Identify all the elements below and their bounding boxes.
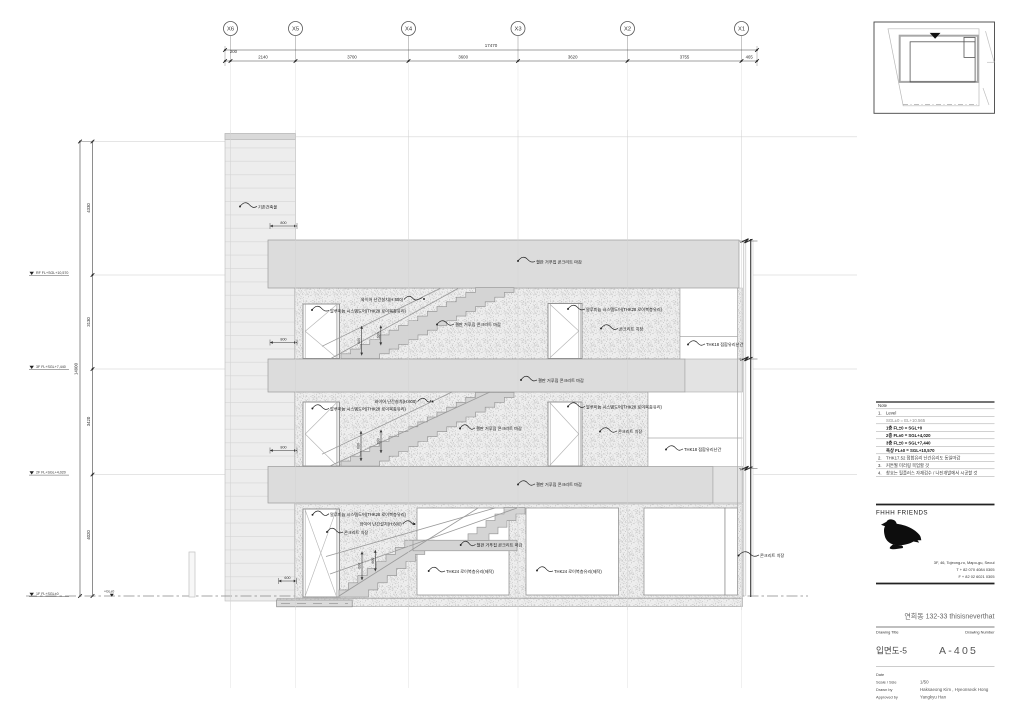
svg-text:챌판 거푸집 콘크리트 마감: 챌판 거푸집 콘크리트 마감 <box>536 481 582 488</box>
svg-text:THK24 로이복층유리(제작): THK24 로이복층유리(제작) <box>446 568 494 575</box>
svg-text:4020: 4020 <box>86 530 91 540</box>
svg-text:와이어 난간설치(H:600): 와이어 난간설치(H:600) <box>361 296 404 303</box>
svg-text:챌판 거푸집 콘크리트 마감: 챌판 거푸집 콘크리트 마감 <box>536 259 582 266</box>
svg-text:Note: Note <box>878 403 888 408</box>
svg-text:3F FL+SGL+7,440: 3F FL+SGL+7,440 <box>36 365 66 369</box>
svg-text:Drawn by: Drawn by <box>876 687 892 692</box>
svg-text:콘크리트 치장: 콘크리트 치장 <box>618 428 642 435</box>
svg-text:3620: 3620 <box>568 55 578 60</box>
svg-text:커튼월 미러링 목업할 것: 커튼월 미러링 목업할 것 <box>886 462 929 469</box>
svg-text:X1: X1 <box>738 27 745 33</box>
svg-text:THK18 접합유리난간: THK18 접합유리난간 <box>706 341 743 348</box>
svg-text:콘크리트 치장: 콘크리트 치장 <box>760 552 784 559</box>
svg-text:챌판 거푸집 콘크리트 마감: 챌판 거푸집 콘크리트 마감 <box>477 542 523 549</box>
svg-text:SGL±0 = EL+10.565: SGL±0 = EL+10.565 <box>886 418 926 423</box>
svg-text:Drawing Number: Drawing Number <box>965 630 995 635</box>
svg-text:600: 600 <box>371 558 375 564</box>
svg-text:2140: 2140 <box>258 55 268 60</box>
svg-text:2F FL+SGL+4,020: 2F FL+SGL+4,020 <box>36 470 66 474</box>
svg-text:Haksaeong Kim , Hyeonseok Hong: Haksaeong Kim , Hyeonseok Hong <box>920 687 989 692</box>
svg-text:알루미늄 시스템도어(THK28 로이복층유리): 알루미늄 시스템도어(THK28 로이복층유리) <box>330 511 407 518</box>
svg-text:Level: Level <box>886 410 896 415</box>
svg-text:600: 600 <box>357 338 361 344</box>
svg-text:챌판 거푸집 콘크리트 마감: 챌판 거푸집 콘크리트 마감 <box>455 321 501 328</box>
svg-text:800: 800 <box>280 337 286 341</box>
svg-text:A-405: A-405 <box>939 645 978 657</box>
svg-text:800: 800 <box>280 445 286 449</box>
svg-text:1층 FL±0 = SGL+0: 1층 FL±0 = SGL+0 <box>886 424 923 431</box>
svg-text:3600: 3600 <box>458 55 468 60</box>
svg-text:와이어 난간설치(H:600): 와이어 난간설치(H:600) <box>374 398 417 405</box>
svg-text:600: 600 <box>377 438 381 444</box>
svg-text:F + 82 02 6021 0305: F + 82 02 6021 0305 <box>958 574 994 579</box>
svg-text:연희동 132-33 thisisneverthat: 연희동 132-33 thisisneverthat <box>904 612 994 621</box>
svg-text:콘크리트 치장: 콘크리트 치장 <box>344 529 368 536</box>
svg-text:3.: 3. <box>878 463 882 468</box>
svg-text:알루미늄 시스템도어(THK28 로이복층유리): 알루미늄 시스템도어(THK28 로이복층유리) <box>330 308 407 315</box>
svg-text:FHHH FRIENDS: FHHH FRIENDS <box>876 510 928 517</box>
svg-text:800: 800 <box>280 221 286 225</box>
svg-text:600: 600 <box>357 443 361 449</box>
svg-text:X3: X3 <box>514 27 521 33</box>
svg-text:17470: 17470 <box>485 43 498 48</box>
svg-text:창호는 필플러스 자재검수 / 나진개발에서 시공할 것: 창호는 필플러스 자재검수 / 나진개발에서 시공할 것 <box>886 469 977 476</box>
svg-text:3층 FL±0 = SGL+7,440: 3층 FL±0 = SGL+7,440 <box>886 439 931 446</box>
svg-text:4.: 4. <box>878 470 882 475</box>
svg-text:알루미늄 시스템도어(THK28 로이복층유리): 알루미늄 시스템도어(THK28 로이복층유리) <box>330 406 407 413</box>
svg-text:THK18 접합유리난간: THK18 접합유리난간 <box>684 446 721 453</box>
svg-text:1/50: 1/50 <box>920 680 929 685</box>
svg-text:RF FL+SGL+10,570: RF FL+SGL+10,570 <box>36 271 68 275</box>
svg-text:2층 FL±0 = SGL+4,020: 2층 FL±0 = SGL+4,020 <box>886 432 931 439</box>
svg-text:14900: 14900 <box>74 362 79 375</box>
svg-text:X5: X5 <box>292 27 299 33</box>
svg-text:기존건축물: 기존건축물 <box>258 204 277 211</box>
svg-text:Drawing Title: Drawing Title <box>876 630 899 635</box>
svg-text:3420: 3420 <box>86 416 91 426</box>
svg-text:3130: 3130 <box>86 317 91 327</box>
svg-text:챌판 거푸집 콘크리트 마감: 챌판 거푸집 콘크리트 마감 <box>476 425 522 432</box>
svg-text:X6: X6 <box>227 27 234 33</box>
svg-text:600: 600 <box>376 332 380 338</box>
svg-text:입면도-5: 입면도-5 <box>876 646 907 656</box>
svg-text:3755: 3755 <box>680 55 690 60</box>
svg-text:Yangkyu Han: Yangkyu Han <box>920 695 947 700</box>
svg-text:600: 600 <box>284 576 290 580</box>
svg-text:T + 82 070 4084 0305: T + 82 070 4084 0305 <box>956 567 994 572</box>
svg-text:콘크리트 치장: 콘크리트 치장 <box>619 326 643 333</box>
svg-text:600: 600 <box>358 563 362 569</box>
svg-text:3700: 3700 <box>347 55 357 60</box>
svg-text:X2: X2 <box>624 27 631 33</box>
svg-text:4330: 4330 <box>86 203 91 213</box>
svg-text:알루미늄 시스템도어(THK28 로이복층유리): 알루미늄 시스템도어(THK28 로이복층유리) <box>586 404 663 411</box>
svg-text:+GL±0: +GL±0 <box>104 590 114 594</box>
svg-text:2.: 2. <box>878 455 882 460</box>
svg-text:200: 200 <box>230 49 238 54</box>
svg-text:옥상 FL±0 = SGL+10,570: 옥상 FL±0 = SGL+10,570 <box>886 447 935 454</box>
svg-text:1.: 1. <box>878 410 882 415</box>
svg-text:THK24 로이복층유리(제작): THK24 로이복층유리(제작) <box>554 568 602 575</box>
svg-text:3F, 46, Tojeong-ro, Mapo-gu, S: 3F, 46, Tojeong-ro, Mapo-gu, Seoul <box>934 560 995 565</box>
svg-text:알루미늄 시스템도어(THK28 로이복층유리): 알루미늄 시스템도어(THK28 로이복층유리) <box>586 306 663 313</box>
svg-text:와이어 난간설치(H:600): 와이어 난간설치(H:600) <box>360 521 403 528</box>
svg-text:Date: Date <box>876 672 884 677</box>
svg-text:X4: X4 <box>405 27 413 33</box>
svg-text:1F FL+SGL±0: 1F FL+SGL±0 <box>36 592 59 596</box>
svg-text:THK17.52 접합유리 난간유리도 동일마감: THK17.52 접합유리 난간유리도 동일마감 <box>886 454 960 461</box>
svg-text:Scale / Size: Scale / Size <box>876 680 897 685</box>
svg-text:Approved by: Approved by <box>876 695 898 700</box>
svg-text:465: 465 <box>746 55 754 60</box>
svg-text:챌판 거푸집 콘크리트 마감: 챌판 거푸집 콘크리트 마감 <box>538 377 584 384</box>
